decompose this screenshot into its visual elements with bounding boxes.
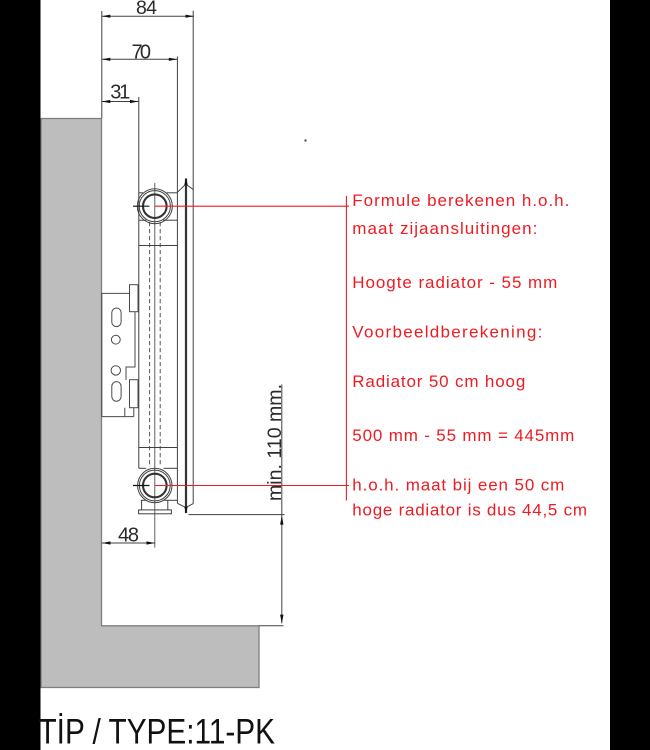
svg-text:70: 70	[132, 41, 152, 63]
svg-text:31: 31	[110, 82, 130, 104]
svg-text:maat zijaansluitingen:: maat zijaansluitingen:	[352, 219, 537, 238]
svg-text:Hoogte radiator - 55 mm: Hoogte radiator - 55 mm	[352, 273, 557, 292]
svg-text:Radiator 50 cm hoog: Radiator 50 cm hoog	[352, 372, 525, 391]
svg-text:hoge radiator is dus 44,5 cm: hoge radiator is dus 44,5 cm	[352, 500, 587, 519]
svg-text:Formule berekenen h.o.h.: Formule berekenen h.o.h.	[352, 191, 569, 210]
svg-text:TİP / TYPE:11-PK: TİP / TYPE:11-PK	[39, 712, 276, 750]
svg-text:min. 110 mm.: min. 110 mm.	[264, 384, 286, 501]
svg-text:Voorbeeldberekening:: Voorbeeldberekening:	[352, 323, 542, 342]
svg-text:84: 84	[136, 0, 157, 19]
svg-text:h.o.h. maat bij een 50 cm: h.o.h. maat bij een 50 cm	[352, 476, 564, 495]
svg-text:500 mm - 55 mm = 445mm: 500 mm - 55 mm = 445mm	[352, 426, 574, 445]
svg-text:48: 48	[118, 525, 139, 547]
